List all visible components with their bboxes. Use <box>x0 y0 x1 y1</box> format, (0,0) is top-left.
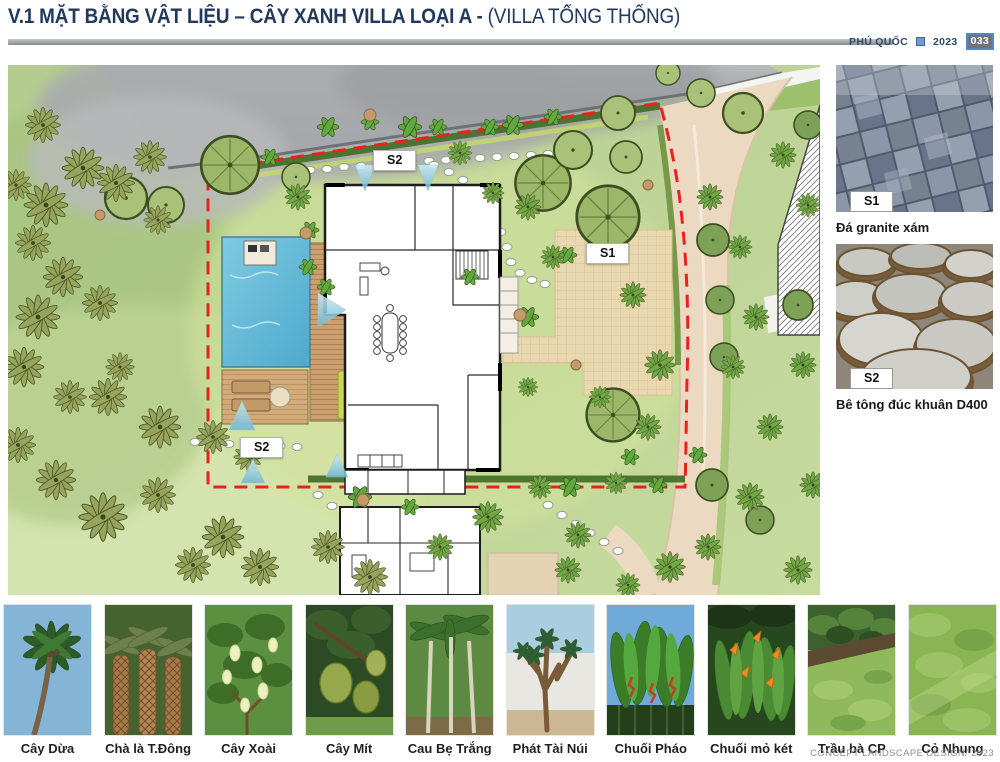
title-sub: (VILLA TỔNG THỐNG) <box>488 5 680 28</box>
material-tag: S1 <box>850 191 893 212</box>
page-title: V.1 MẶT BẰNG VẬT LIỆU – CÂY XANH VILLA L… <box>8 5 680 29</box>
plant-photo <box>4 605 91 735</box>
plant-card-carpet-grass: Cỏ Nhung <box>909 605 996 756</box>
site-plan-drawing <box>8 65 820 595</box>
plant-label: Chà là T.Đông <box>105 741 192 756</box>
material-tag: S2 <box>850 368 893 389</box>
page-number-badge: 033 <box>966 33 994 50</box>
plant-label: Cau Bẹ Trắng <box>406 741 493 756</box>
plant-photo <box>205 605 292 735</box>
plant-photo <box>607 605 694 735</box>
plant-photo <box>808 605 895 735</box>
plant-card-white-areca: Cau Bẹ Trắng <box>406 605 493 756</box>
plant-card-jackfruit: Cây Mít <box>306 605 393 756</box>
plant-label: Cây Xoài <box>205 741 292 756</box>
plant-photo <box>105 605 192 735</box>
plant-label: Chuối mỏ két <box>708 741 795 756</box>
plant-card-ground-philodendron: Trầu bà CP <box>808 605 895 756</box>
plant-label: Phát Tài Núi <box>507 741 594 756</box>
year-label: 2023 <box>933 36 958 48</box>
plant-photo <box>406 605 493 735</box>
material-card-concrete: S2 Bê tông đúc khuân D400 <box>836 244 993 412</box>
plant-card-date-palm: Chà là T.Đông <box>105 605 192 756</box>
plant-label: Cây Dừa <box>4 741 91 756</box>
plant-photo <box>507 605 594 735</box>
material-tag-s1: S1 <box>586 243 629 264</box>
plant-photo <box>708 605 795 735</box>
header-meta: PHÚ QUỐC 2023 033 <box>849 33 994 50</box>
material-caption: Bê tông đúc khuân D400 <box>836 397 993 412</box>
granite-swatch-image: S1 <box>836 65 993 212</box>
header-divider <box>8 39 893 45</box>
project-name: PHÚ QUỐC <box>849 36 908 48</box>
plant-card-heliconia-red: Chuối Pháo <box>607 605 694 756</box>
material-tag-s2-top: S2 <box>373 150 416 171</box>
credit-line: CONCEPT LANDSCAPE DESIGN/ 2023 <box>810 748 994 759</box>
plant-card-mango: Cây Xoài <box>205 605 292 756</box>
title-separator: - <box>476 5 482 28</box>
legend-square-icon <box>916 37 925 46</box>
sheet: V.1 MẶT BẰNG VẬT LIỆU – CÂY XANH VILLA L… <box>0 0 1000 762</box>
plant-strip: Cây Dừa <box>4 605 996 756</box>
plant-card-dracaena: Phát Tài Núi <box>507 605 594 756</box>
villa-floorplan <box>325 185 518 494</box>
material-tag-s2-bottom: S2 <box>240 437 283 458</box>
material-card-granite: S1 Đá granite xám <box>836 65 993 235</box>
concrete-swatch-image: S2 <box>836 244 993 389</box>
plant-label: Chuối Pháo <box>607 741 694 756</box>
plant-label: Cây Mít <box>306 741 393 756</box>
plant-photo <box>306 605 393 735</box>
plant-card-coconut: Cây Dừa <box>4 605 91 756</box>
materials-panel: S1 Đá granite xám <box>836 65 993 421</box>
plant-photo <box>909 605 996 735</box>
material-caption: Đá granite xám <box>836 220 993 235</box>
plant-card-heliconia-orange: Chuối mỏ két <box>708 605 795 756</box>
site-plan: S2 S1 S2 <box>8 65 820 595</box>
title-main: V.1 MẶT BẰNG VẬT LIỆU – CÂY XANH VILLA L… <box>8 5 471 28</box>
